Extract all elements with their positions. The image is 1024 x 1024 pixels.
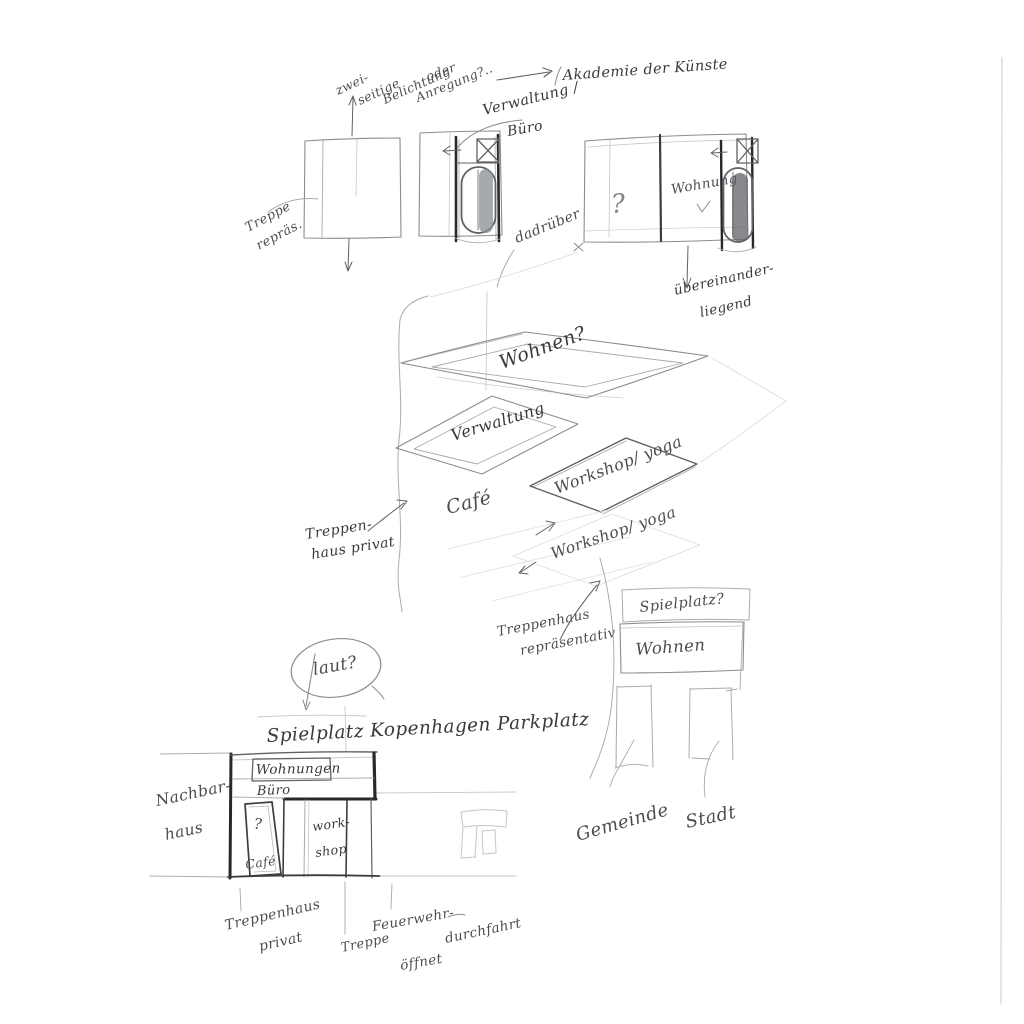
pencil-dot-4 (326, 931, 329, 934)
x-brace-icon (477, 139, 499, 162)
pier-line-1 (283, 799, 284, 877)
pencil-dot (514, 380, 516, 382)
speech-bubble-laut: laut? (287, 633, 384, 710)
laut-label: laut? (311, 652, 359, 680)
label-akademie: Akademie der Künste (497, 56, 728, 85)
spielplatz-label: Spielplatz? (639, 591, 725, 616)
main-facade: Wohnungen Büro ? Café work- shop (228, 752, 516, 878)
uebereinander-line2: liegend (698, 293, 754, 321)
arrow-left-icon-2 (711, 148, 727, 157)
facade-opening-right-marks (692, 741, 719, 797)
faint-ground-plane (701, 358, 786, 462)
neighbor-lines (150, 753, 232, 877)
arrow-up-right-icon (536, 521, 555, 535)
heading-guide-line (258, 715, 366, 717)
elevation-1-outline (304, 138, 401, 238)
right-facade-study: Spielplatz? Wohnen (590, 558, 750, 797)
question-mark-text: ? (610, 189, 628, 220)
note-two-sided-lighting: zwei- seitige Belichtung oder Anregung?.… (332, 59, 495, 108)
treppenhaus-label-line1: Treppenhaus (223, 896, 322, 934)
plane-verwaltung-outer (396, 396, 578, 474)
dadrueber-curve (497, 250, 514, 287)
pencil-dot-3 (257, 837, 259, 839)
label-treppenhaus-repraesentativ: Treppenhaus repräsentativ (496, 581, 618, 659)
wohnung-text: Wohnung (670, 170, 739, 197)
tower-base-flare (455, 238, 500, 243)
dadrueber-text: dadrüber (513, 206, 584, 247)
bubble-flick (372, 686, 384, 699)
tower3-left-wall (721, 141, 722, 250)
arrow-down-left-icon (519, 562, 536, 574)
pencil-sketch: zwei- seitige Belichtung oder Anregung?.… (0, 0, 1024, 1024)
label-treppe-repraes: Treppe repräs. (243, 199, 305, 253)
doodle-left-leg (461, 826, 477, 858)
elevation-study-1 (268, 96, 401, 271)
label-treppenhaus-privat-iso: Treppen- haus privat (304, 500, 407, 563)
faint-connector (430, 252, 578, 297)
paper-edge (1001, 58, 1002, 1003)
wavy-line-hook (400, 296, 428, 320)
nachbar-line2: haus (163, 818, 205, 844)
pier-line-2 (346, 800, 347, 877)
workshop-label-line2: shop (314, 841, 347, 860)
label-uebereinander: übereinander- liegend (672, 246, 775, 321)
x-mark-icon (574, 243, 583, 251)
facade-opening-left (616, 685, 653, 768)
workshop-label-line1: work- (311, 814, 351, 834)
treppenhaus-label-line2: privat (257, 929, 304, 955)
akademie-tick (555, 67, 561, 85)
mini-plan-doodle (461, 810, 507, 858)
entrance-line-2 (308, 800, 309, 877)
durchfahrt-label: durchfahrt (444, 915, 523, 947)
check-tick (697, 201, 710, 212)
akademie-text: Akademie der Künste (560, 56, 728, 84)
elevation-study-3: ? Wohnung (574, 134, 758, 252)
cafe-label: Café (444, 486, 494, 518)
facade-left-wall (230, 754, 231, 878)
facade-bottom-annotations: Treppenhaus privat Treppe Feuerwehr- öff… (223, 882, 523, 974)
buero-label: Büro (256, 783, 291, 799)
elevation-3-party-wall (660, 135, 661, 241)
elevation-study-2 (419, 131, 502, 243)
arrow-up-icon (349, 96, 356, 136)
stadt-label: Stadt (684, 802, 739, 833)
facade-heading: Spielplatz Kopenhagen Parkplatz (258, 706, 590, 751)
entrance-line-1 (304, 800, 305, 877)
street-curve (590, 558, 614, 778)
pencil-dot-2 (644, 736, 647, 739)
facade-right-wall-lower (371, 799, 372, 878)
label-verwaltung-buero: Verwaltung / Büro (458, 79, 582, 147)
facade-right-wall-upper (374, 753, 375, 799)
treppe-label: Treppe (340, 931, 391, 956)
site-boundary-wavy-line (398, 320, 402, 612)
tower3-base-flare (718, 247, 756, 252)
nachbar-line1: Nachbar- (153, 776, 233, 810)
gemeinde-label: Gemeinde (574, 799, 672, 846)
band-extension-line (377, 792, 516, 793)
verwaltung-line: Verwaltung / (481, 79, 582, 119)
wohnen-plane-label: Wohnen? (496, 322, 589, 374)
doodle-inner-rect (482, 830, 496, 854)
wohnen-band-label: Wohnen (635, 635, 706, 659)
stakeholder-labels: Gemeinde Stadt (574, 799, 739, 846)
leader-arrow-curve (368, 500, 407, 531)
door-question-mark: ? (254, 815, 263, 833)
arrow-right-icon (497, 68, 552, 80)
wohnen-band-double (621, 626, 742, 628)
elevation-1-inner-line (322, 140, 323, 237)
sketch-page: zwei- seitige Belichtung oder Anregung?.… (0, 0, 1024, 1024)
elevation-2-inner-line (449, 133, 450, 235)
cafe-door-label: Café (244, 853, 277, 872)
x-brace-icon-2 (737, 139, 758, 163)
doodle-top-bar (461, 810, 507, 827)
facade-right-edge (740, 622, 743, 690)
oeffnet-label: öffnet (399, 951, 444, 974)
elevation-3-inner-line (609, 140, 610, 237)
elevation-1-inner-line-2 (356, 139, 357, 196)
wohnungen-label: Wohnungen (256, 761, 341, 778)
pencil-dot-5 (671, 833, 674, 836)
facade-top-edge (231, 752, 377, 755)
arrow-down-icon (345, 239, 352, 271)
neighbor-house: Nachbar- haus (150, 753, 233, 877)
